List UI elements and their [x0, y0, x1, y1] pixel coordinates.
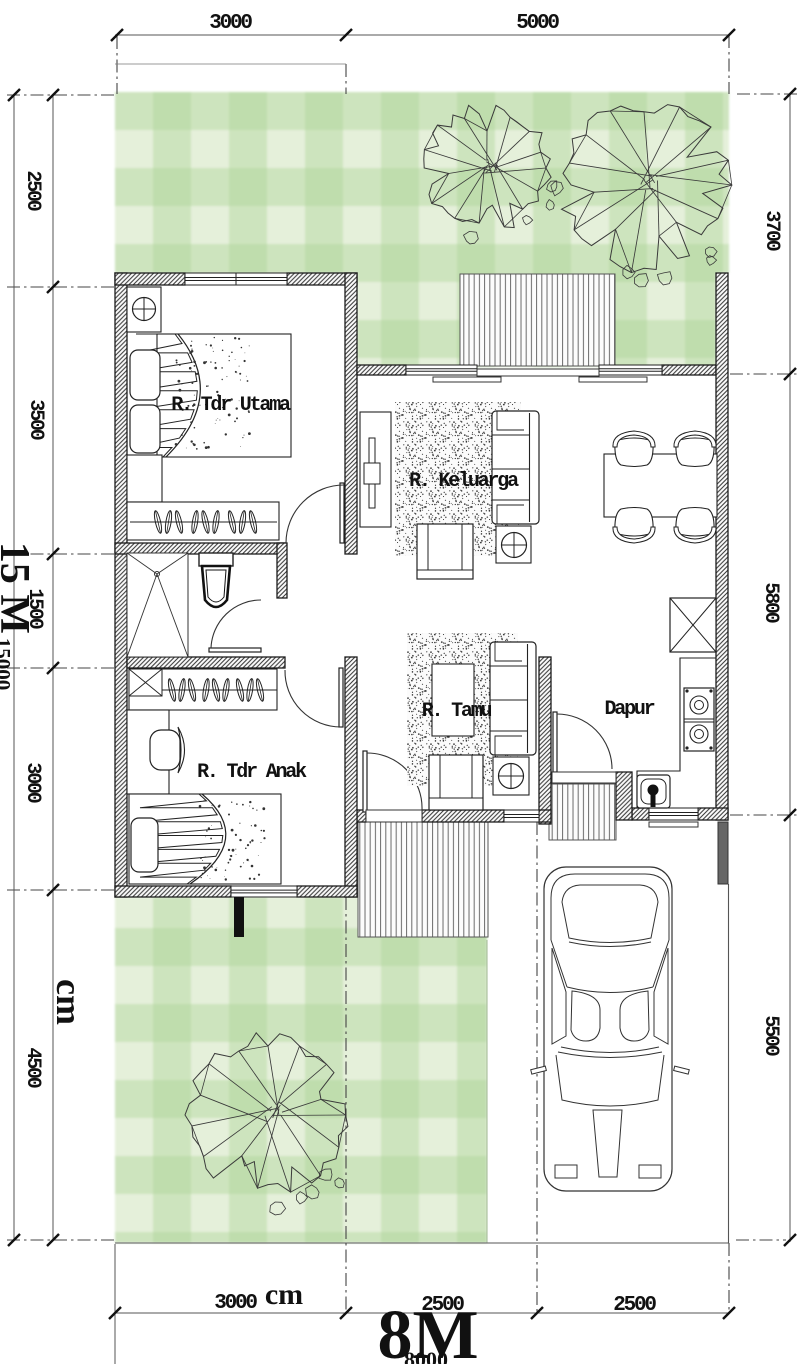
svg-text:R. Tdr Utama: R. Tdr Utama	[171, 394, 291, 417]
svg-text:2500: 2500	[613, 1294, 656, 1317]
svg-text:3700: 3700	[760, 210, 783, 250]
svg-text:2500: 2500	[21, 170, 44, 210]
svg-text:3000: 3000	[209, 12, 252, 35]
svg-text:5500: 5500	[759, 1015, 782, 1055]
svg-text:3500: 3500	[24, 399, 47, 439]
svg-text:R. Tamu: R. Tamu	[422, 700, 492, 723]
svg-text:Dapur: Dapur	[604, 698, 654, 721]
svg-text:5000: 5000	[516, 12, 559, 35]
svg-text:R. Tdr Anak: R. Tdr Anak	[197, 761, 307, 784]
svg-text:3000: 3000	[21, 762, 44, 802]
svg-text:8000: 8000	[404, 1347, 448, 1364]
svg-text:3000: 3000	[214, 1292, 257, 1315]
svg-text:cm: cm	[49, 979, 89, 1025]
svg-text:5800: 5800	[759, 582, 782, 622]
svg-text:R. Keluarga: R. Keluarga	[409, 470, 519, 493]
svg-text:15000: 15000	[0, 638, 15, 691]
svg-text:cm: cm	[265, 1278, 303, 1311]
svg-text:1500: 1500	[23, 588, 46, 628]
svg-text:4500: 4500	[21, 1047, 44, 1087]
